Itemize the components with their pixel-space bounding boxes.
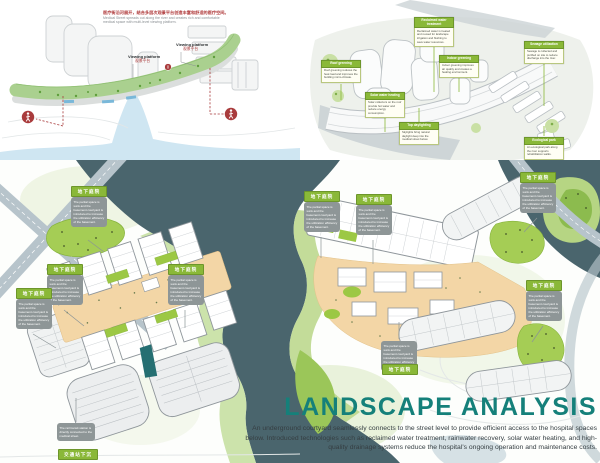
tech-label-body: Indoor greening improves air quality and… <box>439 63 479 78</box>
description-line: below. Introduced technologies such as r… <box>205 434 597 444</box>
viewing-platform-zh: 观景平台 <box>135 59 160 64</box>
caption-zh: 医疗街沿河展开，结合多层次观景平台创造丰富和舒适的医疗空间。 <box>103 10 241 16</box>
tech-label-title: Solar water heating <box>365 92 405 100</box>
underground-courtyard-label: 地下庭院 <box>382 364 418 375</box>
tech-label-title: Top daylighting <box>399 122 439 130</box>
underground-courtyard-label: 地下庭院 <box>304 191 340 202</box>
section-caption: 医疗街沿河展开，结合多层次观景平台创造丰富和舒适的医疗空间。 Medical S… <box>103 10 241 25</box>
pedestrian-badge <box>22 111 34 123</box>
underground-courtyard-label: 地下庭院 <box>526 280 562 291</box>
tech-label: Reclaimed water treatment Reclaimed wate… <box>414 17 454 47</box>
annotation-note: The partial space is sunk and the baseme… <box>168 275 204 305</box>
tech-label: Ecological park An ecological park along… <box>524 137 564 160</box>
description-line: quality drainage systems reduce the hosp… <box>205 443 597 453</box>
viewing-platform-label: Viewing platform 观景平台 <box>176 42 208 52</box>
tech-label: Solar water heating Solar collectors on … <box>365 92 405 118</box>
pedestrian-badge <box>225 108 237 120</box>
caption-en-line2: medical space with multi-level viewing p… <box>103 20 241 25</box>
underground-courtyard-label: 地下庭院 <box>47 264 83 275</box>
tech-label-body: Roof greening reduces the heat load and … <box>321 68 361 83</box>
annotation-note: The partial space is sunk and the baseme… <box>304 202 340 232</box>
tech-label-title: Ecological park <box>524 137 564 145</box>
annotation-note: The partial space is sunk and the baseme… <box>71 197 107 227</box>
tech-label: Sewage utilization Sewage is collected a… <box>524 41 564 64</box>
underground-courtyard-label: 地下庭院 <box>520 172 556 183</box>
annotation-note: The partial space is sunk and the baseme… <box>47 275 83 305</box>
page-title: LANDSCAPE ANALYSIS <box>284 393 597 422</box>
underground-courtyard-label: 地下庭院 <box>71 186 107 197</box>
annotation-note: The partial space is sunk and the baseme… <box>520 183 556 213</box>
tech-label: Roof greening Roof greening reduces the … <box>321 60 361 83</box>
tech-label: Top daylighting Skylights bring natural … <box>399 122 439 145</box>
transit-station-label: 交通站下沉 <box>58 449 98 460</box>
tech-label-body: Solar collectors on the roof provide hot… <box>365 100 405 119</box>
tech-label-title: Roof greening <box>321 60 361 68</box>
tech-label-title: Reclaimed water treatment <box>414 17 454 28</box>
aerial-rendering-panel: Reclaimed water treatment Reclaimed wate… <box>300 0 600 165</box>
medical-street-diagram-panel: 医疗街沿河展开，结合多层次观景平台创造丰富和舒适的医疗空间。 Medical S… <box>0 0 300 160</box>
underground-courtyard-label: 地下庭院 <box>356 194 392 205</box>
tech-label-title: Sewage utilization <box>524 41 564 49</box>
viewing-platform-zh: 观景平台 <box>183 47 208 52</box>
tech-label-title: Indoor greening <box>439 55 479 63</box>
annotation-note: The partial space is sunk and the baseme… <box>16 299 52 329</box>
viewing-platform-label: Viewing platform 观景平台 <box>128 54 160 64</box>
tech-label-body: Skylights bring natural daylight deep in… <box>399 130 439 145</box>
tech-label-body: Reclaimed water is treated and reused fo… <box>414 28 454 47</box>
annotation-note: The partial space is sunk and the baseme… <box>526 291 562 321</box>
underground-courtyard-label: 地下庭院 <box>16 288 52 299</box>
deck-marker-badge <box>165 64 172 71</box>
underground-courtyard-label: 地下庭院 <box>168 264 204 275</box>
tech-label: Indoor greening Indoor greening improves… <box>439 55 479 78</box>
annotation-note: The rail transit station is directly con… <box>57 423 95 441</box>
site-plan-panel: 地下庭院 The partial space is sunk and the b… <box>0 160 600 463</box>
presentation-board: 医疗街沿河展开，结合多层次观景平台创造丰富和舒适的医疗空间。 Medical S… <box>0 0 600 463</box>
tech-label-body: An ecological park along the river suppo… <box>524 145 564 160</box>
description-line: An underground courtyard seamlessly conn… <box>205 424 597 434</box>
tech-label-body: Sewage is collected and purified on site… <box>524 49 564 64</box>
description-paragraph: An underground courtyard seamlessly conn… <box>205 424 597 453</box>
annotation-note: The partial space is sunk and the baseme… <box>356 205 392 235</box>
